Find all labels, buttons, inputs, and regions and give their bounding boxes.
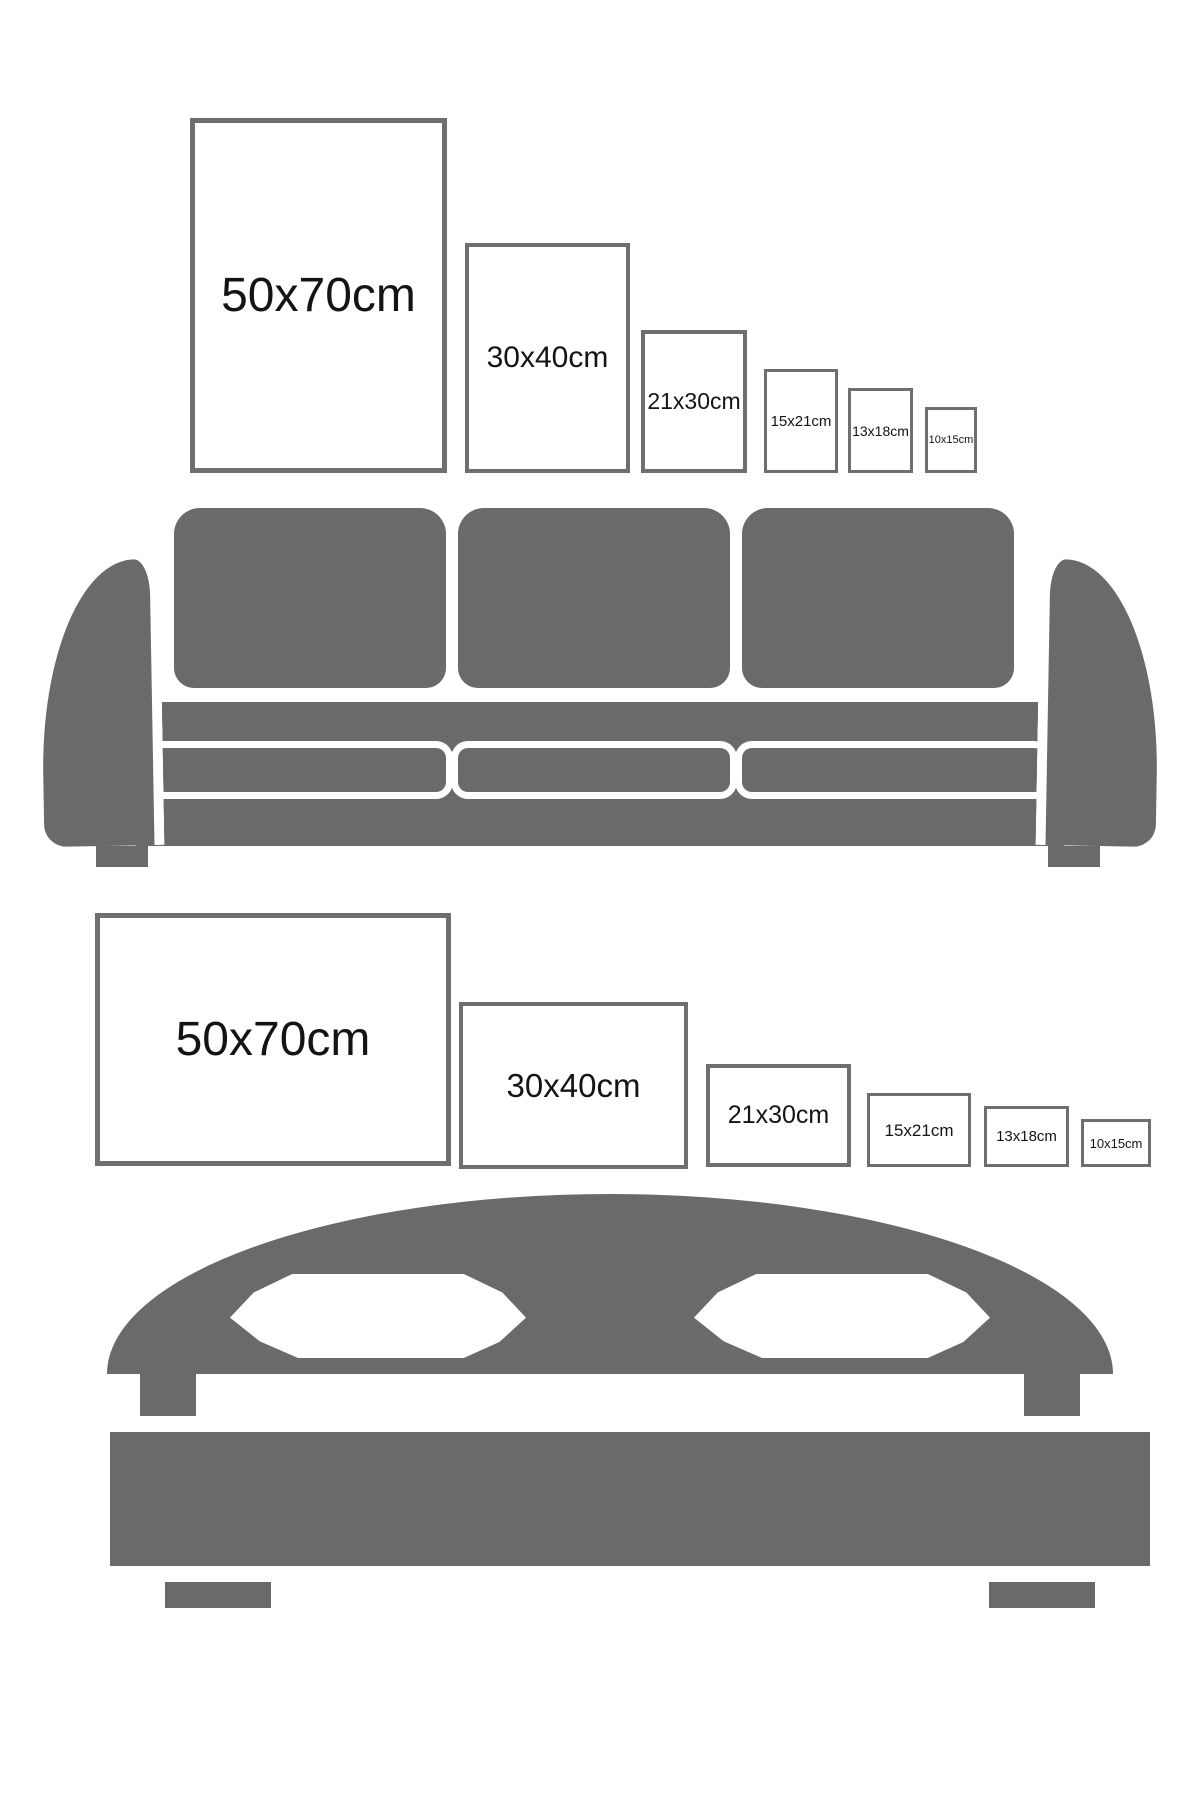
size-label: 50x70cm (221, 272, 416, 320)
size-frame-sofa-21x30cm: 21x30cm (641, 330, 747, 473)
poster-size-guide: 50x70cm30x40cm21x30cm15x21cm13x18cm10x15… (0, 0, 1200, 1800)
size-frame-bed-30x40cm: 30x40cm (459, 1002, 688, 1169)
sofa-left-arm (40, 559, 165, 847)
bed-headboard-arch (107, 1194, 1113, 1374)
sofa-right-arm (1036, 559, 1161, 847)
sofa-back-cushion-middle (458, 508, 730, 688)
size-label: 30x40cm (507, 1069, 641, 1102)
sofa-back-cushion-right (742, 508, 1014, 688)
bed-leg-right (1024, 1310, 1080, 1416)
bed-pillow-cutout-left (230, 1274, 526, 1358)
size-frame-sofa-15x21cm: 15x21cm (764, 369, 838, 473)
sofa-seat-cushion-right (742, 748, 1044, 792)
size-frame-bed-13x18cm: 13x18cm (984, 1106, 1069, 1167)
size-frame-sofa-50x70cm: 50x70cm (190, 118, 447, 473)
bed-leg-left (140, 1310, 196, 1416)
size-frame-bed-21x30cm: 21x30cm (706, 1064, 851, 1167)
bed-foot-left (165, 1582, 271, 1608)
sofa-back-cushion-left (174, 508, 446, 688)
size-label: 21x30cm (728, 1103, 829, 1128)
bed-foot-right (989, 1582, 1095, 1608)
size-frame-bed-15x21cm: 15x21cm (867, 1093, 971, 1167)
sofa-seat-cushion-left (144, 748, 446, 792)
bed-pillow-cutout-right (694, 1274, 990, 1358)
size-frame-sofa-30x40cm: 30x40cm (465, 243, 630, 473)
size-label: 30x40cm (487, 343, 609, 373)
size-label: 10x15cm (929, 435, 974, 446)
sofa-seat-cushion-middle (458, 748, 730, 792)
sofa-foot-left (96, 846, 148, 867)
size-label: 50x70cm (176, 1016, 371, 1064)
size-frame-sofa-10x15cm: 10x15cm (925, 407, 977, 473)
size-frame-bed-10x15cm: 10x15cm (1081, 1119, 1151, 1167)
size-label: 21x30cm (647, 390, 740, 413)
size-frame-sofa-13x18cm: 13x18cm (848, 388, 913, 473)
sofa-foot-right (1048, 846, 1100, 867)
size-label: 15x21cm (885, 1122, 954, 1139)
bed-base (110, 1432, 1150, 1566)
size-frame-bed-50x70cm: 50x70cm (95, 913, 451, 1166)
size-label: 13x18cm (996, 1129, 1057, 1144)
size-label: 15x21cm (771, 414, 832, 429)
size-label: 10x15cm (1090, 1137, 1143, 1150)
size-label: 13x18cm (852, 424, 909, 438)
